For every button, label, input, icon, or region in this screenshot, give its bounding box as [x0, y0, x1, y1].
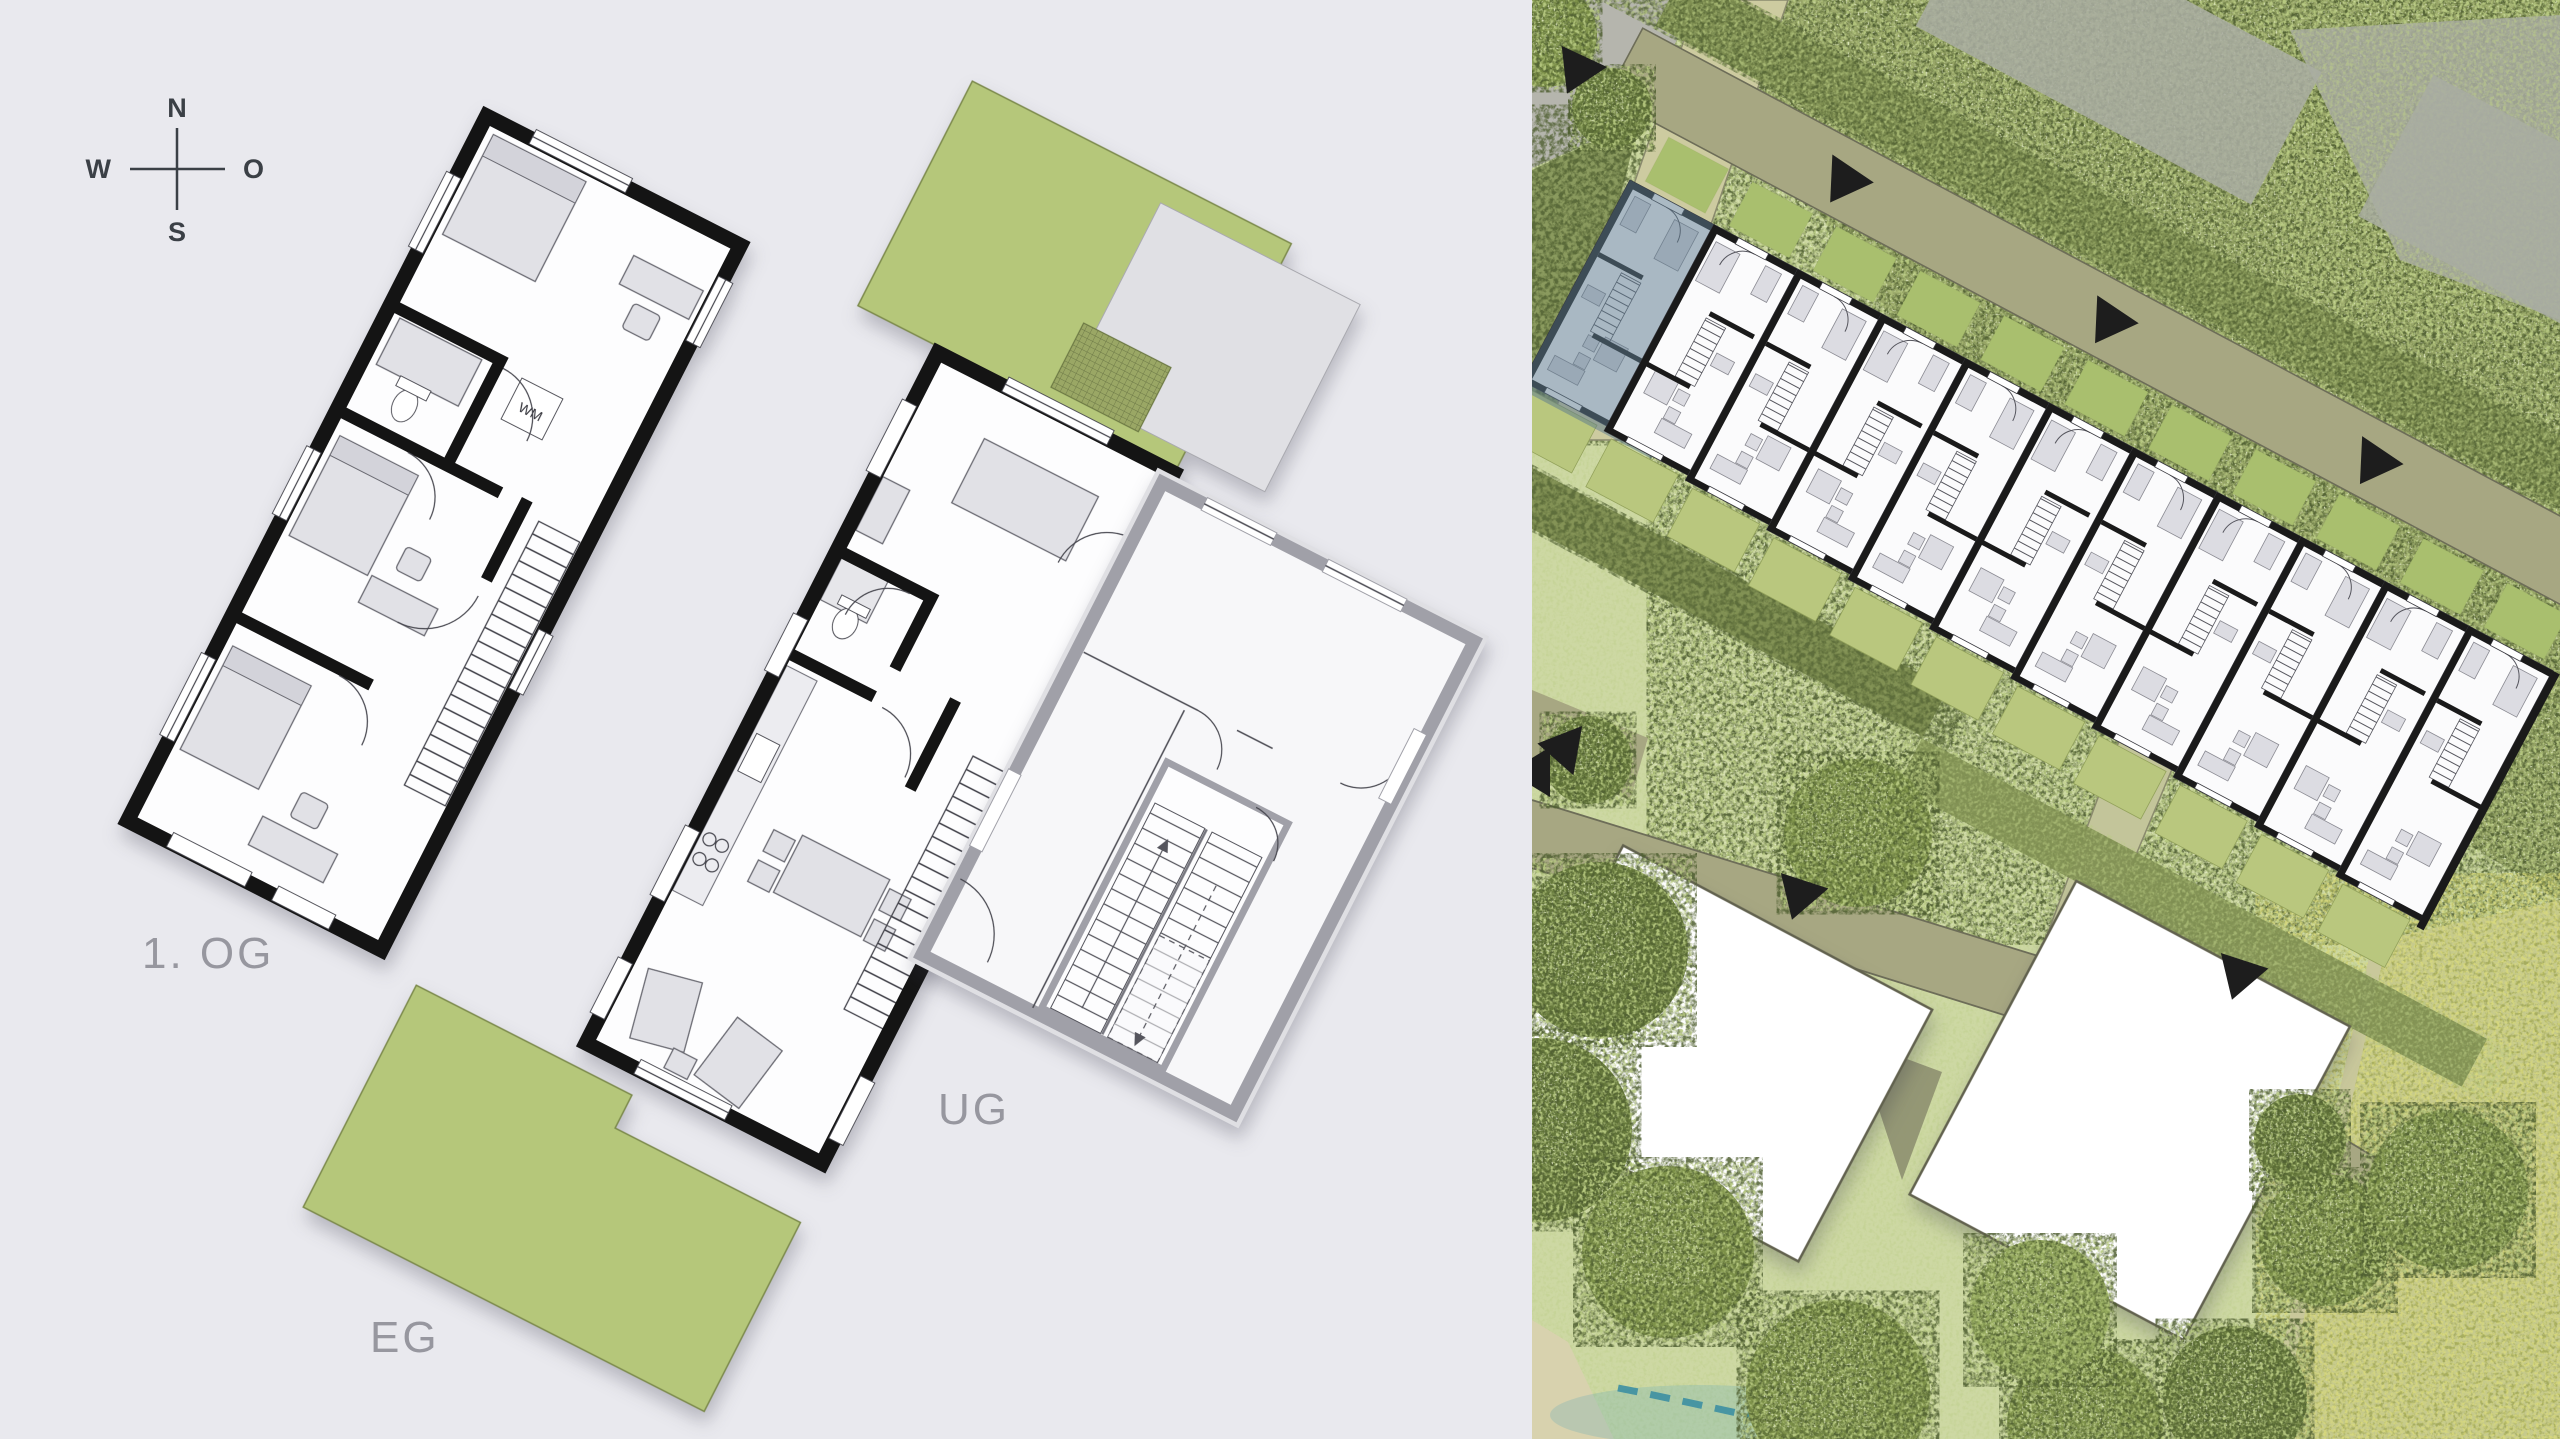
- tree: [1970, 1240, 2110, 1380]
- compass-north-label: N: [167, 93, 187, 123]
- site-plan-panel: [1532, 0, 2560, 1439]
- floor-label-eg: EG: [370, 1313, 440, 1362]
- compass-south-label: S: [168, 217, 186, 247]
- floor-label-ug: UG: [938, 1085, 1010, 1134]
- tree: [1582, 1166, 1754, 1338]
- architectural-sheet: N O S W WM: [0, 0, 2560, 1439]
- floor-plans-panel: N O S W WM: [0, 0, 1532, 1439]
- tree: [2368, 1110, 2528, 1270]
- compass-west-label: W: [86, 154, 112, 184]
- tree: [2254, 1094, 2346, 1186]
- floor-label-1og: 1. OG: [142, 929, 274, 978]
- compass-east-label: O: [243, 154, 264, 184]
